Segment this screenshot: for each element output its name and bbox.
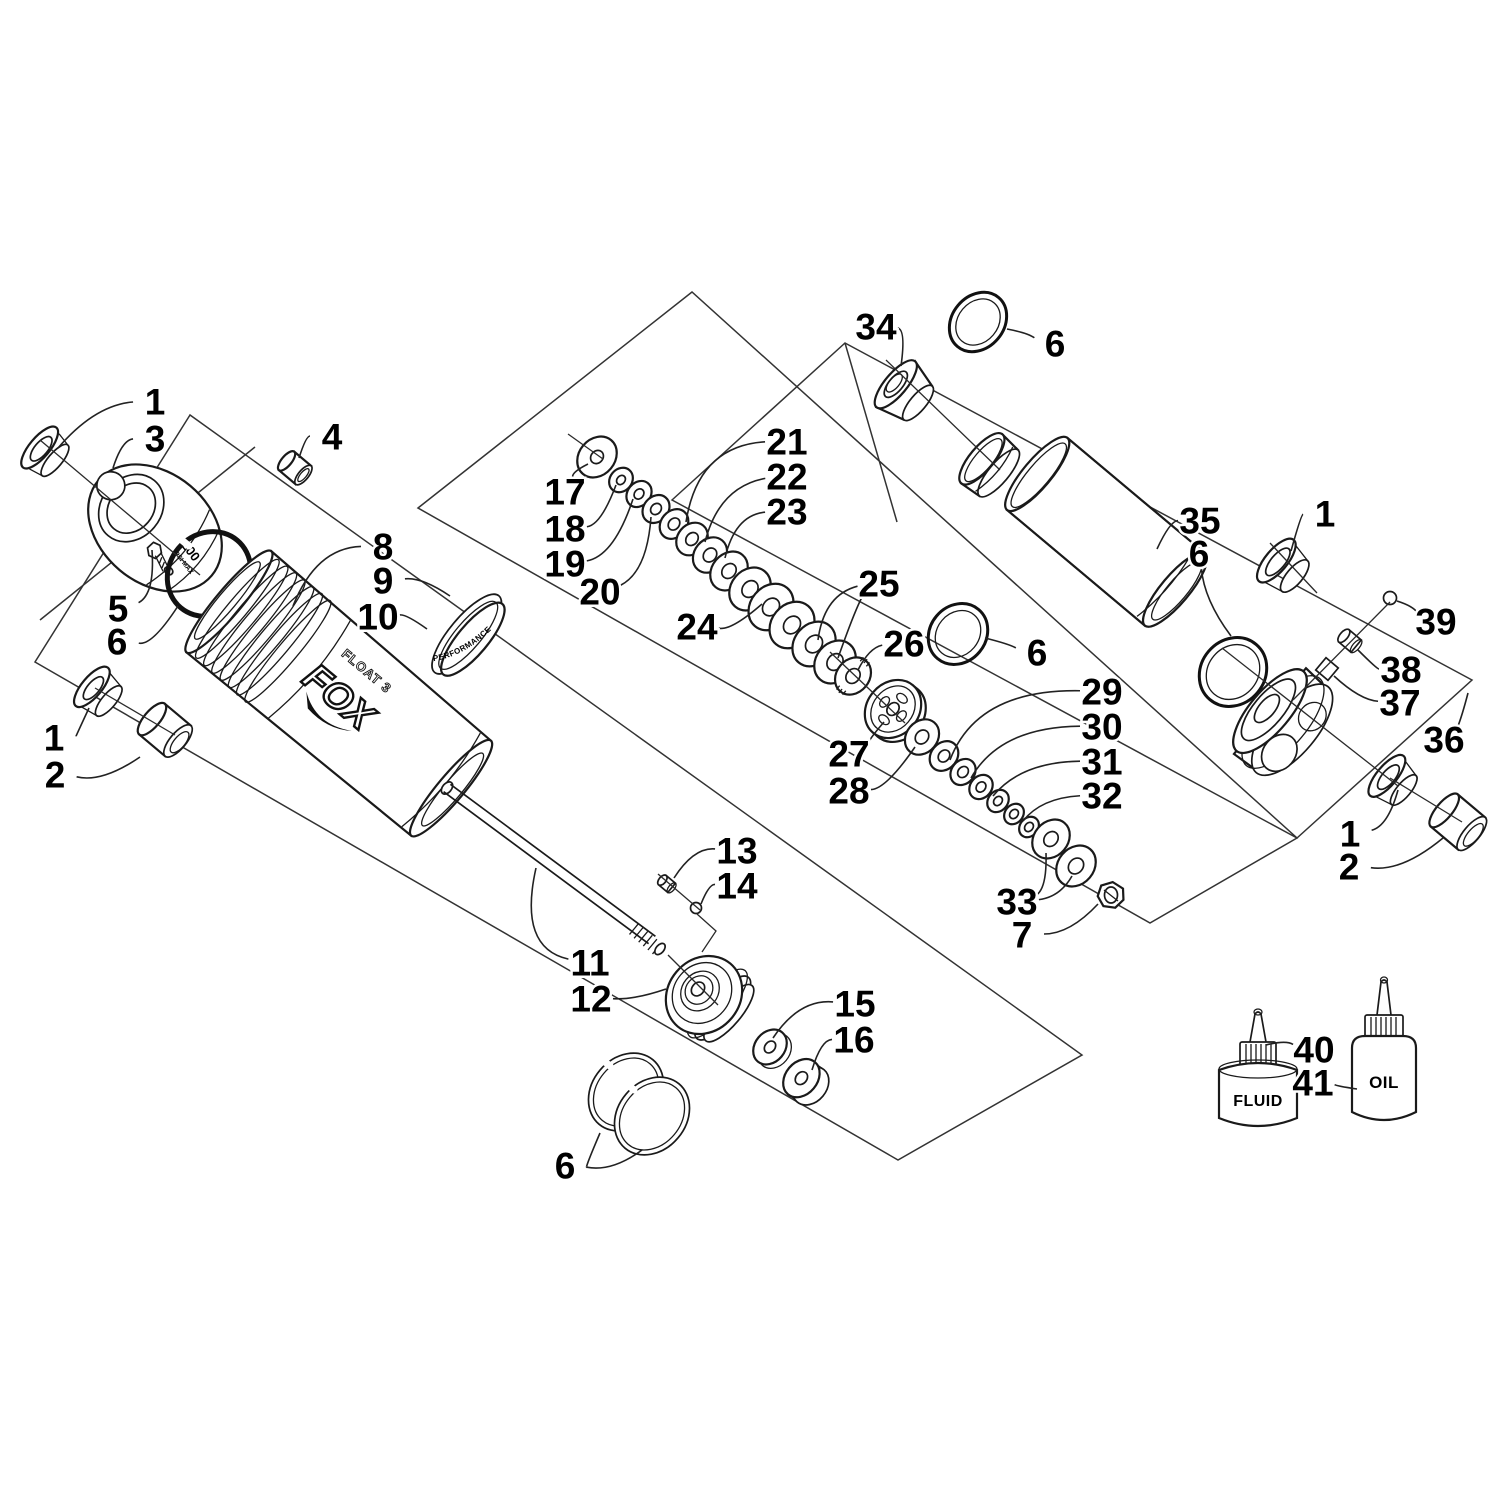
callout-number-15: 15 <box>834 983 875 1024</box>
callout-leader-30 <box>971 726 1080 778</box>
callout-number-6: 6 <box>1189 533 1210 574</box>
spacer-left-mid <box>133 699 197 762</box>
callout-number-37: 37 <box>1379 682 1420 723</box>
callout-leader-6 <box>985 638 1016 648</box>
callout-leader-7 <box>1044 904 1098 934</box>
callout-leader-9 <box>405 579 450 596</box>
callout-number-14: 14 <box>716 865 758 906</box>
bushing-bottom-right <box>1362 750 1425 815</box>
callout-number-6: 6 <box>107 621 128 662</box>
fluid-bottle-label: FLUID <box>1233 1093 1283 1110</box>
callout-leader-29 <box>950 691 1080 760</box>
callout-leader-20 <box>620 517 651 585</box>
callout-number-1: 1 <box>44 717 65 758</box>
callout-number-16: 16 <box>833 1019 874 1060</box>
oil-bottle-label: OIL <box>1369 1073 1399 1092</box>
callout-number-9: 9 <box>373 560 394 601</box>
callout-number-1: 1 <box>1315 493 1336 534</box>
callout-leader-6 <box>587 1133 600 1167</box>
seal-head <box>650 940 766 1053</box>
air-sleeve-body: FLOAT 3 FOX <box>177 543 504 847</box>
callout-leader-1 <box>58 402 133 448</box>
callout-leader-38 <box>1358 650 1379 669</box>
callout-leader-2 <box>1371 838 1443 868</box>
callout-number-39: 39 <box>1415 601 1456 642</box>
callout-number-17: 17 <box>544 471 585 512</box>
callout-number-2: 2 <box>1339 846 1360 887</box>
diagram-page: 200 PSI MAX <box>0 0 1500 1500</box>
washer-16 <box>776 1052 837 1112</box>
callout-number-27: 27 <box>828 733 869 774</box>
callout-number-2: 2 <box>45 754 66 795</box>
callout-leader-19 <box>587 499 633 561</box>
callout-leader-12 <box>613 989 666 999</box>
fluid-bottle: FLUID <box>1219 1009 1297 1126</box>
bushing-left-mid <box>68 661 130 724</box>
damper-shaft <box>439 780 667 957</box>
callout-number-1: 1 <box>145 381 166 422</box>
parts-layer: 200 PSI MAX <box>15 281 1491 1170</box>
eyelet-body: 200 PSI MAX <box>62 438 247 618</box>
callout-number-20: 20 <box>579 571 620 612</box>
callout-number-36: 36 <box>1423 719 1464 760</box>
callout-number-6: 6 <box>1027 632 1048 673</box>
callout-number-26: 26 <box>883 623 924 664</box>
pellet-38 <box>1336 627 1364 654</box>
cylinder-pin-4 <box>275 449 315 488</box>
callout-leader-6 <box>1007 329 1034 338</box>
callout-number-7: 7 <box>1012 914 1033 955</box>
callout-number-12: 12 <box>570 978 611 1019</box>
bushing-top-left <box>15 421 77 485</box>
callout-leader-37 <box>1334 676 1378 701</box>
lock-nut-7 <box>1096 880 1125 908</box>
o-ring-mid <box>916 591 1000 676</box>
callout-leader-14 <box>701 884 715 904</box>
ball-14 <box>691 903 702 914</box>
callout-number-34: 34 <box>855 306 897 347</box>
callout-number-3: 3 <box>145 418 166 459</box>
o-ring-top-right <box>938 281 1019 363</box>
oil-bottle: OIL <box>1352 977 1416 1120</box>
outline-edge-notch <box>845 343 897 522</box>
callout-leader-34 <box>898 328 903 366</box>
callout-number-23: 23 <box>766 491 807 532</box>
callout-leader-10 <box>400 615 427 629</box>
outline-box-reservoir <box>672 343 1472 838</box>
callout-number-41: 41 <box>1292 1062 1333 1103</box>
callout-leader-6 <box>1201 568 1231 636</box>
callout-number-11: 11 <box>570 942 609 983</box>
callout-leader-18 <box>587 485 616 527</box>
callout-number-24: 24 <box>676 606 718 647</box>
callout-leader-1 <box>1291 514 1303 551</box>
shock-absorber-exploded-diagram: 200 PSI MAX <box>0 0 1500 1500</box>
callout-number-6: 6 <box>555 1145 576 1186</box>
callout-number-4: 4 <box>322 416 343 457</box>
callout-leader-4 <box>299 436 310 458</box>
callout-number-6: 6 <box>1045 323 1066 364</box>
callout-leader-1 <box>76 708 89 736</box>
sleeve-band-rings: PERFORMANCE <box>422 585 517 687</box>
callout-number-32: 32 <box>1081 775 1122 816</box>
callout-number-10: 10 <box>357 596 398 637</box>
floating-piston-bearing <box>868 354 943 431</box>
callout-leader-11 <box>531 868 568 959</box>
callout-number-28: 28 <box>828 770 869 811</box>
shim-stack <box>569 429 864 692</box>
callout-number-25: 25 <box>858 563 899 604</box>
callout-leader-2 <box>77 757 140 778</box>
callout-leader-6 <box>139 606 178 643</box>
callout-leader-13 <box>674 849 715 878</box>
